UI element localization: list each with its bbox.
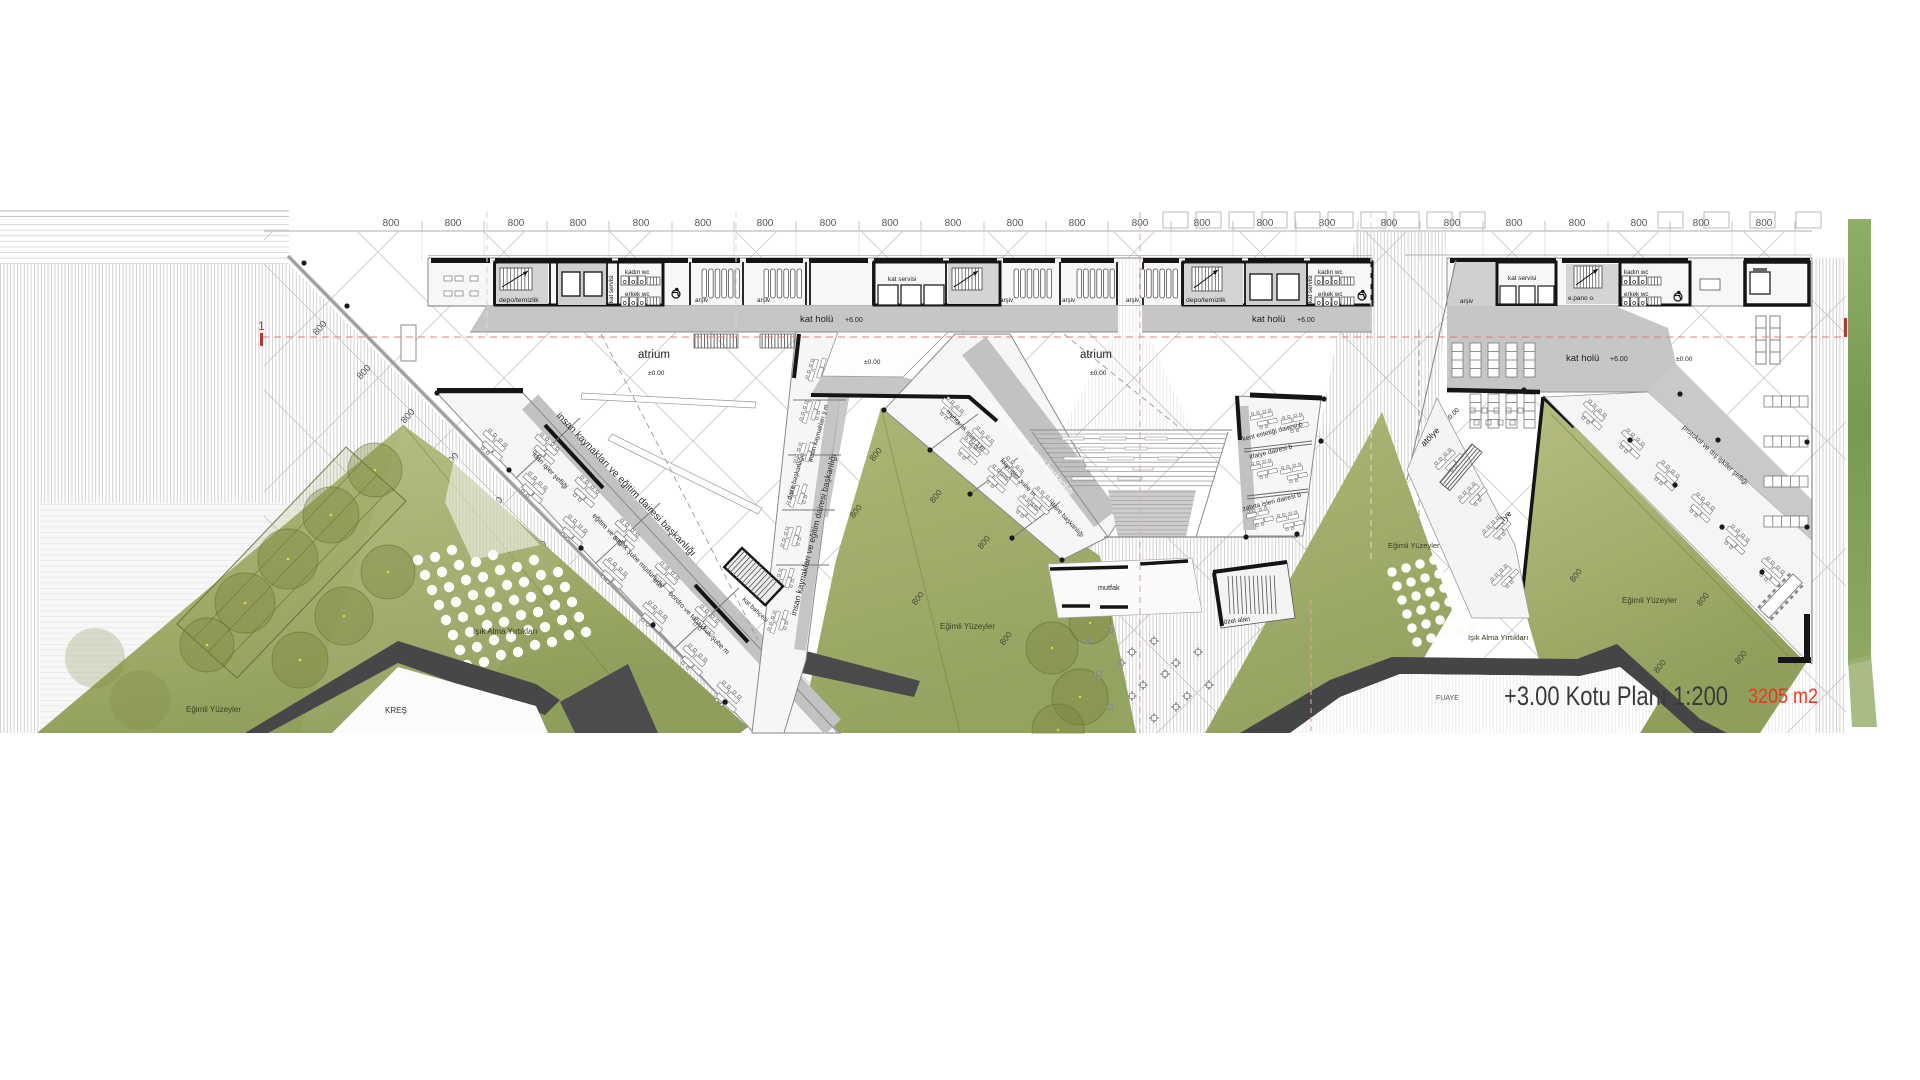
svg-text:800: 800 (1693, 218, 1710, 229)
svg-text:800: 800 (1756, 218, 1773, 229)
svg-text:arşiv: arşiv (695, 297, 709, 304)
svg-text:+6.00: +6.00 (1610, 356, 1628, 363)
svg-text:800: 800 (570, 218, 587, 229)
svg-text:3205 m2: 3205 m2 (1748, 685, 1818, 708)
svg-text:atrium: atrium (1080, 349, 1112, 361)
svg-text:800: 800 (1007, 218, 1024, 229)
svg-text:±0.00: ±0.00 (648, 370, 665, 377)
svg-text:800: 800 (633, 218, 650, 229)
svg-text:Eğimli Yüzeyler: Eğimli Yüzeyler (1622, 596, 1677, 605)
svg-text:arşiv: arşiv (1000, 297, 1014, 304)
svg-text:800: 800 (1381, 218, 1398, 229)
svg-text:arşiv: arşiv (1062, 297, 1076, 304)
svg-text:arşiv: arşiv (1460, 298, 1474, 305)
svg-text:800: 800 (1319, 218, 1336, 229)
svg-text:KREŞ: KREŞ (385, 706, 407, 715)
svg-text:kat servisi: kat servisi (888, 276, 916, 283)
svg-text:+6.00: +6.00 (845, 317, 863, 324)
svg-text:Eğimli Yüzeyler: Eğimli Yüzeyler (940, 622, 995, 631)
svg-text:Işık Alma Yırtıkları: Işık Alma Yırtıkları (1468, 633, 1528, 642)
svg-text:arşiv: arşiv (1126, 297, 1140, 304)
svg-text:kadın wc: kadın wc (1318, 269, 1342, 276)
svg-text:+3.00 Kotu Planı 1:200: +3.00 Kotu Planı 1:200 (1504, 681, 1728, 711)
svg-text:800: 800 (1569, 218, 1586, 229)
svg-text:kat servisi: kat servisi (1307, 275, 1314, 303)
svg-text:±0.00: ±0.00 (864, 359, 881, 366)
svg-text:kat servisi: kat servisi (1508, 275, 1536, 282)
svg-text:800: 800 (445, 218, 462, 229)
svg-text:1: 1 (258, 319, 265, 333)
svg-text:FUAYE: FUAYE (1436, 695, 1459, 702)
svg-text:kat holü: kat holü (1252, 314, 1285, 325)
svg-text:kat servisi: kat servisi (608, 275, 615, 303)
svg-text:800: 800 (695, 218, 712, 229)
svg-text:depo/temizlik: depo/temizlik (1186, 297, 1226, 304)
svg-text:800: 800 (820, 218, 837, 229)
svg-text:800: 800 (383, 218, 400, 229)
svg-text:e.pano o.: e.pano o. (1568, 295, 1595, 302)
svg-text:Eğimli Yüzeyler: Eğimli Yüzeyler (186, 705, 241, 714)
svg-text:kat holü: kat holü (800, 314, 833, 325)
svg-text:kat holü: kat holü (1566, 353, 1599, 364)
svg-text:±0.00: ±0.00 (1676, 356, 1693, 363)
svg-text:+6.00: +6.00 (1297, 317, 1315, 324)
svg-text:800: 800 (1631, 218, 1648, 229)
svg-text:800: 800 (945, 218, 962, 229)
svg-text:800: 800 (1506, 218, 1523, 229)
svg-text:depo/temizlik: depo/temizlik (499, 297, 539, 304)
svg-text:800: 800 (1257, 218, 1274, 229)
svg-text:mutfak: mutfak (1098, 583, 1120, 592)
svg-text:800: 800 (882, 218, 899, 229)
svg-text:arşiv: arşiv (757, 297, 771, 304)
svg-text:800: 800 (1069, 218, 1086, 229)
svg-text:800: 800 (757, 218, 774, 229)
svg-text:±0.00: ±0.00 (1090, 370, 1107, 377)
svg-text:kadın wc: kadın wc (625, 269, 649, 276)
svg-text:Işık Alma Yırtıkları: Işık Alma Yırtıkları (473, 627, 537, 636)
svg-text:Eğimli Yüzeyler: Eğimli Yüzeyler (1388, 541, 1440, 550)
svg-text:kadın wc: kadın wc (1624, 269, 1648, 276)
svg-text:800: 800 (508, 218, 525, 229)
svg-text:atrium: atrium (638, 349, 670, 361)
